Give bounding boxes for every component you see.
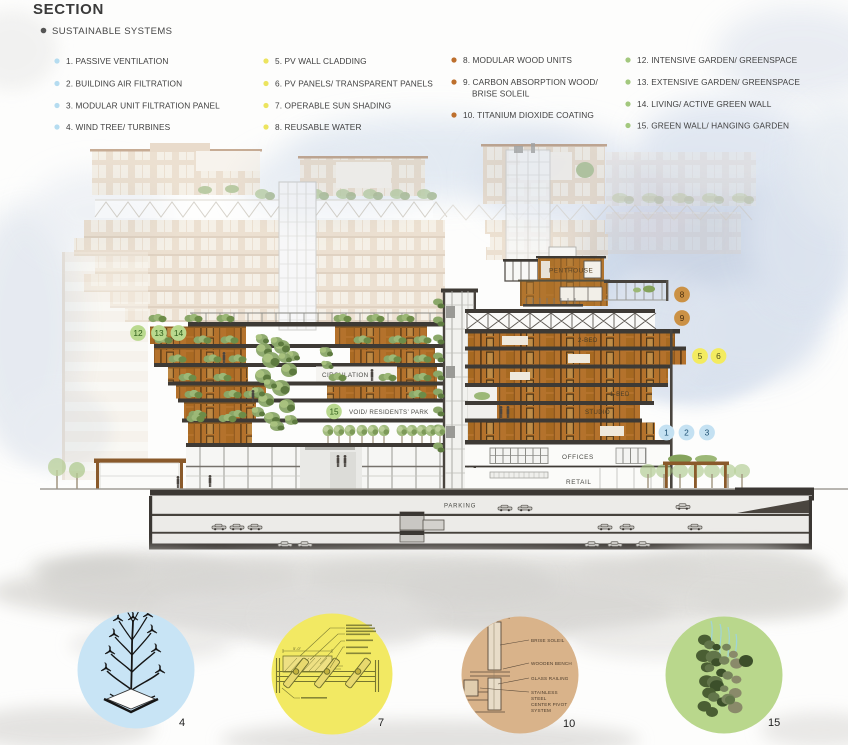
svg-text:5. PV WALL CLADDING: 5. PV WALL CLADDING: [275, 56, 367, 66]
svg-text:15: 15: [329, 408, 339, 417]
svg-text:5: 5: [698, 351, 703, 361]
svg-text:14. LIVING/ ACTIVE GREEN WALL: 14. LIVING/ ACTIVE GREEN WALL: [637, 99, 772, 109]
svg-text:8. REUSABLE WATER: 8. REUSABLE WATER: [275, 122, 362, 132]
svg-text:7. OPERABLE SUN SHADING: 7. OPERABLE SUN SHADING: [275, 101, 391, 111]
svg-text:VOID/ RESIDENTS’ PARK: VOID/ RESIDENTS’ PARK: [349, 409, 429, 416]
svg-text:RETAIL: RETAIL: [566, 479, 592, 486]
svg-text:3. MODULAR UNIT FILTRATION PAN: 3. MODULAR UNIT FILTRATION PANEL: [66, 101, 220, 111]
svg-text:SYSTEM: SYSTEM: [531, 708, 551, 713]
svg-text:12. INTENSIVE GARDEN/ GREENSPA: 12. INTENSIVE GARDEN/ GREENSPACE: [637, 55, 798, 65]
svg-text:GLASS RAILING: GLASS RAILING: [531, 676, 569, 681]
svg-text:7: 7: [378, 717, 384, 729]
svg-text:STEEL: STEEL: [531, 696, 547, 701]
svg-text:9. CARBON ABSORPTION WOOD/: 9. CARBON ABSORPTION WOOD/: [463, 77, 599, 87]
svg-text:9: 9: [680, 313, 685, 323]
svg-text:4: 4: [179, 717, 185, 729]
svg-text:10: 10: [563, 718, 575, 730]
svg-text:BRISE SOLEIL: BRISE SOLEIL: [472, 89, 530, 99]
svg-text:STUDIO: STUDIO: [585, 410, 610, 416]
svg-text:2: 2: [684, 428, 689, 438]
svg-text:15. GREEN WALL/ HANGING GARDEN: 15. GREEN WALL/ HANGING GARDEN: [637, 121, 789, 131]
svg-text:13: 13: [154, 328, 164, 338]
svg-text:SECTION: SECTION: [33, 1, 104, 18]
svg-text:8. MODULAR WOOD UNITS: 8. MODULAR WOOD UNITS: [463, 55, 572, 65]
svg-text:PARKING: PARKING: [444, 504, 476, 510]
svg-text:13. EXTENSIVE GARDEN/ GREENSPA: 13. EXTENSIVE GARDEN/ GREENSPACE: [637, 77, 800, 87]
svg-text:3: 3: [705, 428, 710, 438]
svg-text:6: 6: [716, 351, 721, 361]
svg-text:15: 15: [768, 717, 780, 729]
svg-text:BRISE SOLEIL: BRISE SOLEIL: [531, 638, 565, 643]
svg-text:2. BUILDING AIR FILTRATION: 2. BUILDING AIR FILTRATION: [66, 79, 182, 89]
svg-text:SUSTAINABLE SYSTEMS: SUSTAINABLE SYSTEMS: [52, 26, 172, 37]
svg-text:10. TITANIUM DIOXIDE COATING: 10. TITANIUM DIOXIDE COATING: [463, 110, 594, 120]
svg-text:12: 12: [133, 328, 143, 338]
svg-text:8: 8: [680, 290, 685, 300]
svg-text:STAINLESS: STAINLESS: [531, 690, 558, 695]
svg-text:CENTER PIVOT: CENTER PIVOT: [531, 702, 567, 707]
svg-text:1-BED: 1-BED: [610, 392, 630, 398]
svg-text:WOODEN BENCH: WOODEN BENCH: [531, 661, 572, 666]
svg-text:OFFICES: OFFICES: [562, 454, 594, 461]
svg-text:PENTHOUSE: PENTHOUSE: [549, 268, 593, 275]
svg-text:14: 14: [174, 328, 184, 338]
svg-text:4. WIND TREE/ TURBINES: 4. WIND TREE/ TURBINES: [66, 122, 171, 132]
svg-text:1: 1: [664, 428, 669, 438]
svg-text:6. PV PANELS/ TRANSPARENT PAN: 6. PV PANELS/ TRANSPARENT PANELS: [275, 79, 433, 89]
svg-text:1. PASSIVE VENTILATION: 1. PASSIVE VENTILATION: [66, 56, 168, 66]
svg-text:5’-0”: 5’-0”: [293, 646, 302, 651]
svg-text:2-BED: 2-BED: [578, 338, 598, 344]
